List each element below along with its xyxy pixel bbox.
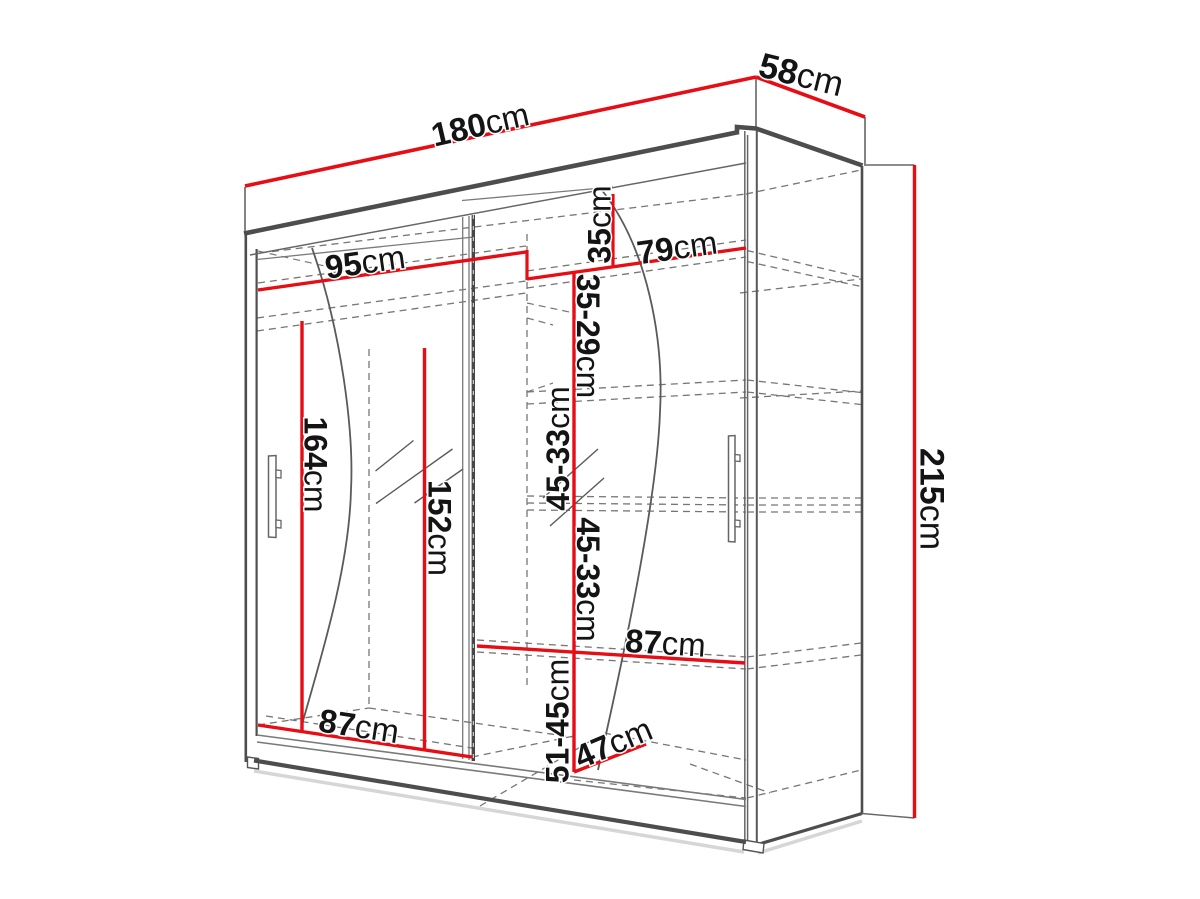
svg-text:45-33cm: 45-33cm [540,386,576,511]
svg-text:215cm: 215cm [912,448,950,550]
svg-text:35-29cm: 35-29cm [570,274,606,399]
svg-text:87cm: 87cm [624,622,707,664]
svg-text:45-33cm: 45-33cm [570,517,606,642]
svg-text:164cm: 164cm [298,416,334,512]
svg-text:51-45cm: 51-45cm [540,659,576,784]
svg-text:152cm: 152cm [422,480,458,576]
svg-text:35cm: 35cm [582,185,618,263]
